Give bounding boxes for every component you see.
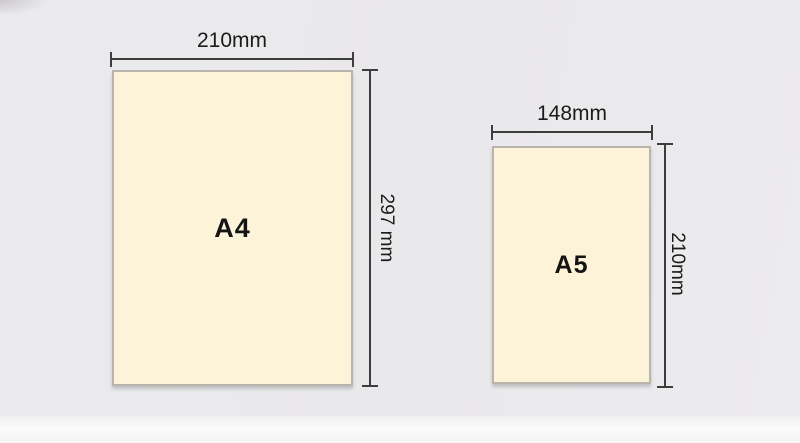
- a4-height-value: 297 mm: [375, 178, 397, 278]
- a4-height-cap-bottom: [362, 385, 378, 387]
- a5-width-line: [491, 131, 653, 133]
- paper-a4-label: A4: [214, 213, 251, 244]
- paper-a5: A5: [492, 146, 651, 384]
- floor-surface: [0, 416, 800, 443]
- a4-width-line: [110, 58, 354, 60]
- corner-shade-decoration: [0, 0, 90, 26]
- a4-width-dimension: [110, 52, 354, 67]
- paper-a4: A4: [112, 70, 353, 386]
- a4-width-tick-right: [352, 52, 354, 67]
- a5-width-value: 148mm: [491, 102, 653, 126]
- a5-width-dimension: [491, 125, 653, 140]
- a5-height-cap-bottom: [657, 386, 673, 388]
- paper-a5-label: A5: [555, 251, 589, 280]
- a4-height-line: [369, 69, 371, 387]
- a5-height-value: 210mm: [666, 214, 688, 314]
- a4-width-value: 210mm: [110, 29, 354, 53]
- a5-width-tick-right: [651, 125, 653, 140]
- paper-size-comparison-diagram: A4 210mm 297 mm A5 148mm 210mm: [0, 0, 800, 443]
